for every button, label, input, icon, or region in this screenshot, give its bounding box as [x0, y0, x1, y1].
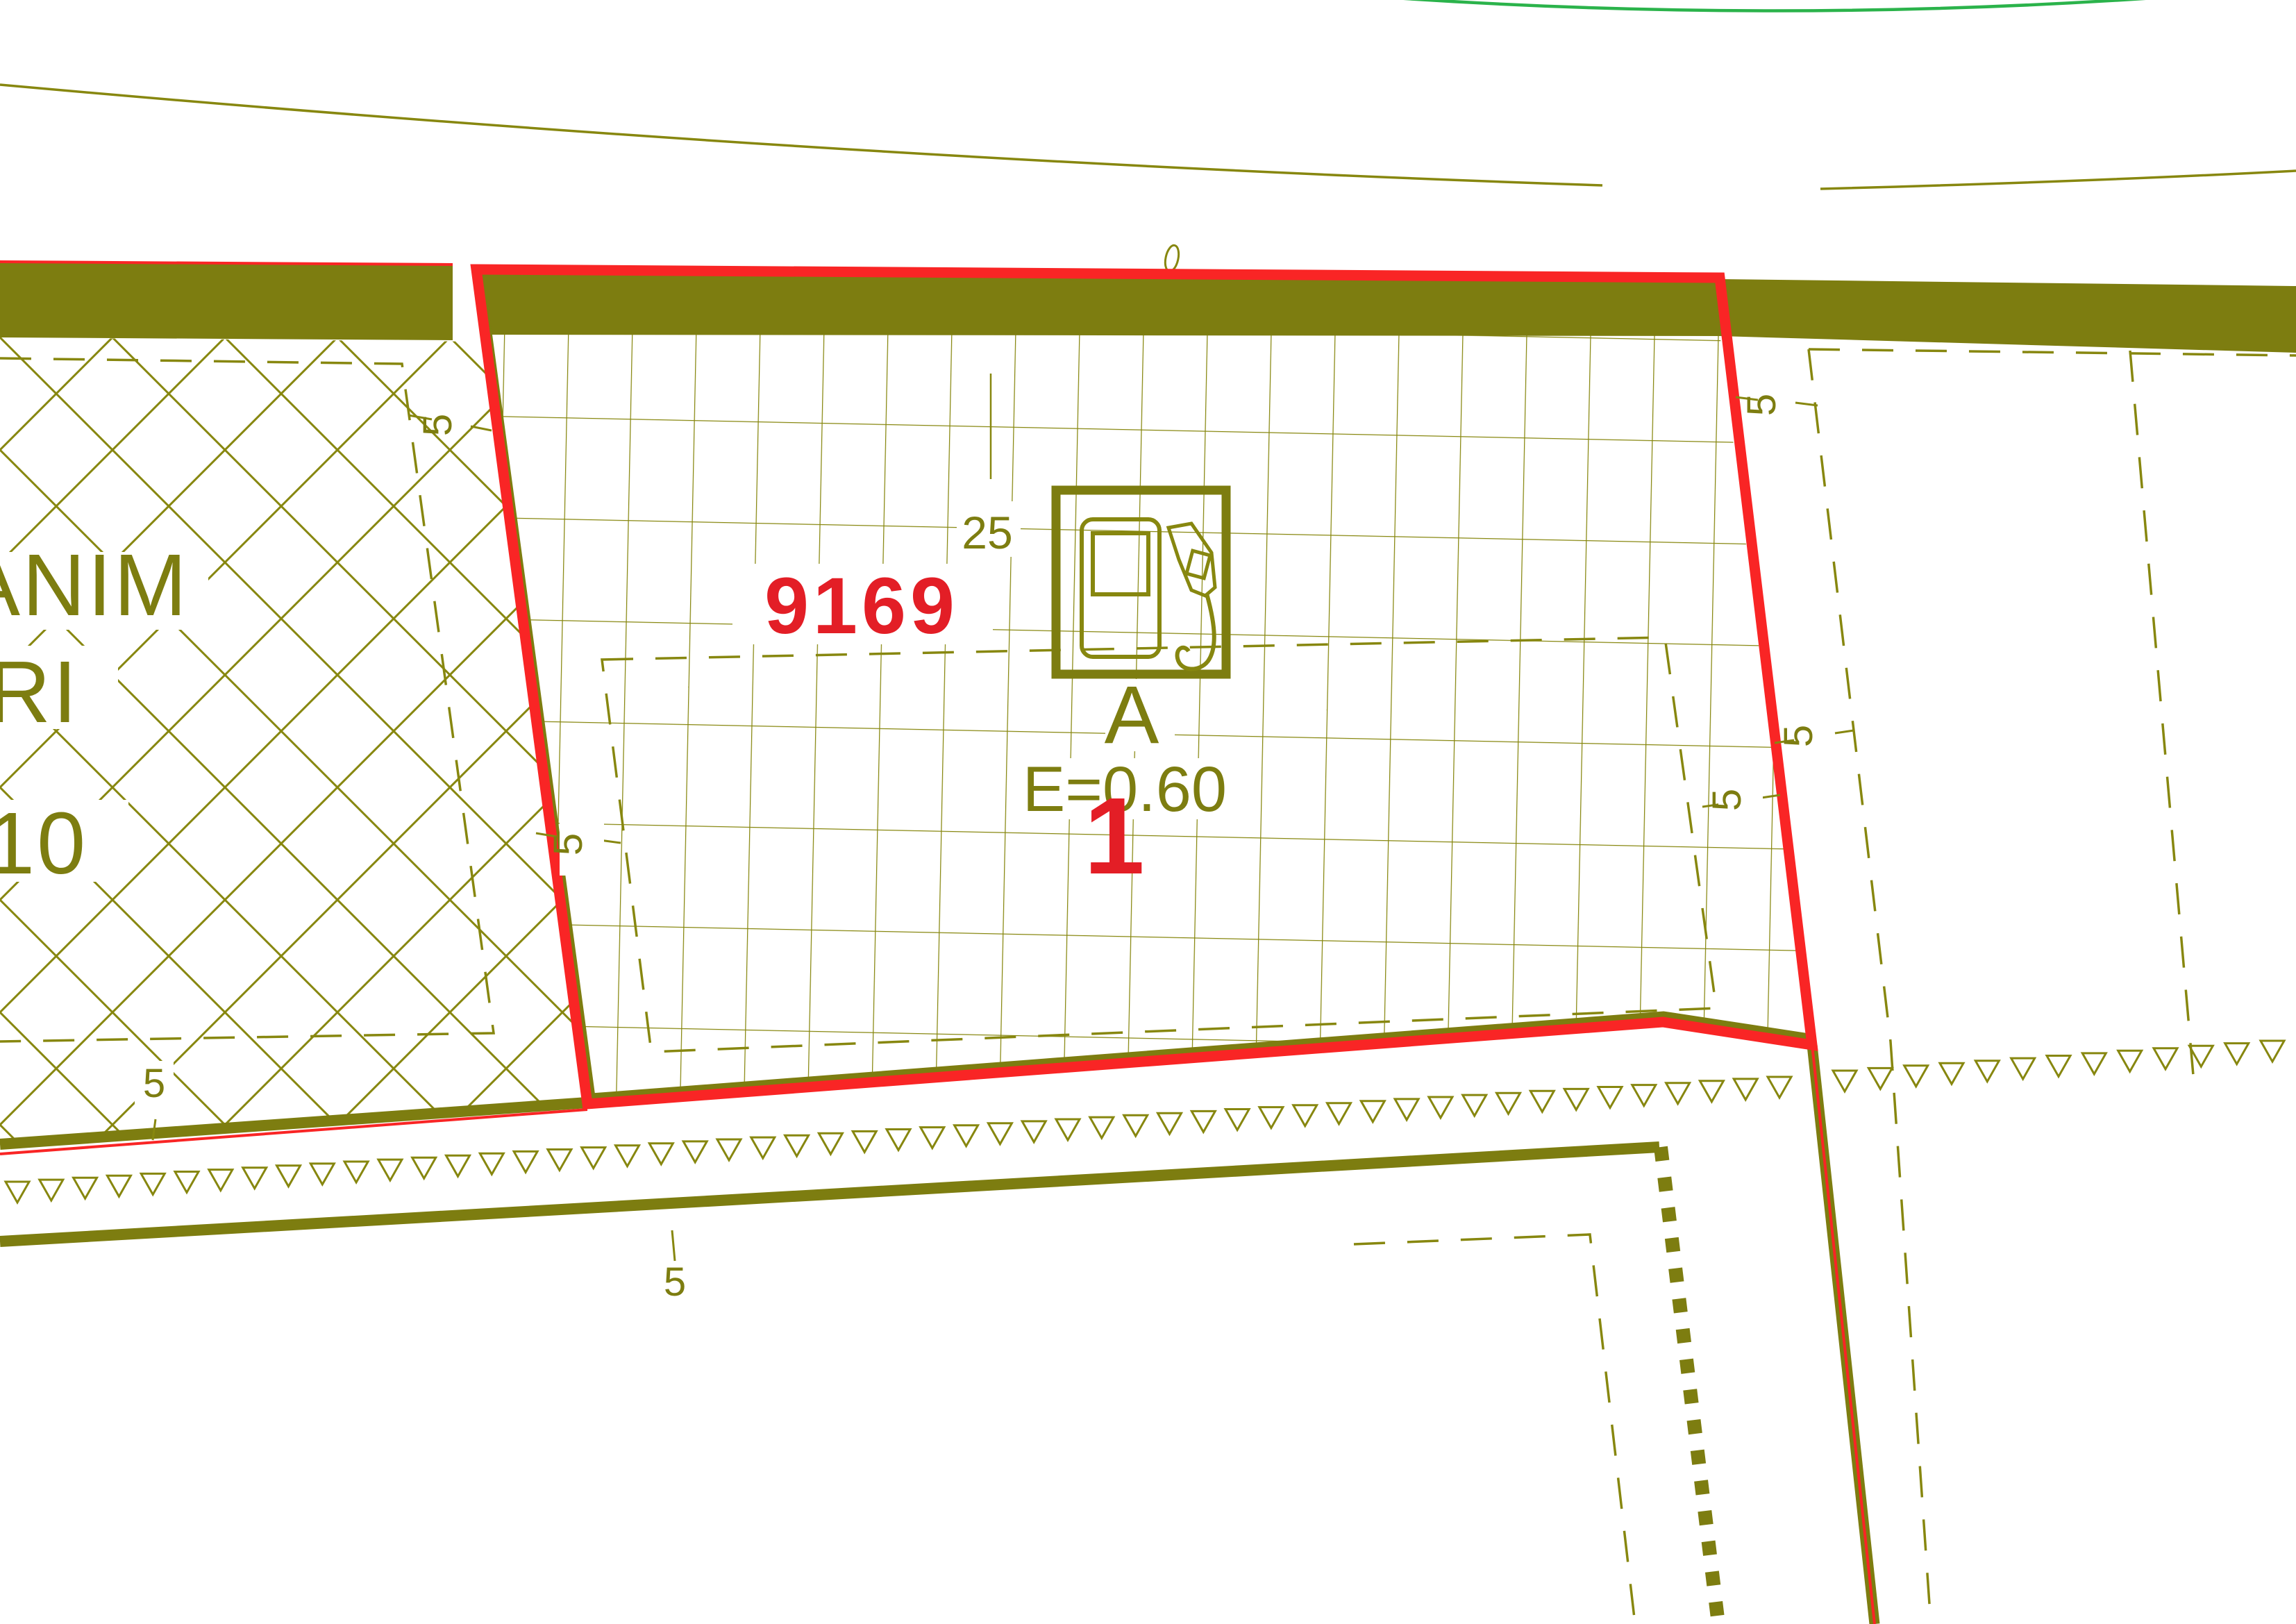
road-triangle-marker [310, 1164, 334, 1184]
road-triangle-marker [751, 1137, 775, 1158]
road-triangle-marker [582, 1148, 605, 1169]
small-node-glyph [1163, 244, 1181, 273]
road-band-left [0, 262, 453, 340]
road-triangle-marker [209, 1170, 233, 1191]
setback-dimension-label: 5 [664, 1259, 686, 1305]
road-triangle-marker [1666, 1083, 1690, 1104]
setback-dimension-label: 5 [1776, 725, 1821, 747]
setback-dimension-label: 5 [1739, 394, 1784, 416]
road-triangle-marker [1022, 1121, 1046, 1142]
road-triangle-marker [1530, 1091, 1554, 1112]
contour-curves [0, 0, 2296, 272]
left-zone-text-line1: ANIM [0, 536, 189, 634]
road-triangle-marker [412, 1157, 436, 1178]
road-triangle-marker [1395, 1099, 1418, 1120]
road-triangle-marker [548, 1150, 571, 1171]
road-triangle-marker [1632, 1085, 1656, 1106]
left-zone-text-line3: 10 [0, 794, 87, 892]
road-triangle-marker [1191, 1111, 1215, 1132]
road-triangle-marker [2047, 1056, 2070, 1077]
road-triangle-marker [74, 1178, 97, 1198]
zoning-plan-canvas: 9169 25 A E=0.60 1 ANIM RI 10 5555555 [0, 0, 2296, 1624]
green-boundary-curve [1396, 0, 2154, 11]
road-triangle-marker [887, 1130, 910, 1150]
road-triangle-marker [1361, 1101, 1384, 1122]
road-triangle-marker [2118, 1050, 2142, 1071]
road-triangle-marker [1734, 1079, 1757, 1100]
road-triangle-marker [1124, 1115, 1148, 1136]
road-triangle-marker [1768, 1077, 1791, 1098]
road-triangle-marker [921, 1128, 944, 1148]
road-triangle-marker [2082, 1053, 2106, 1074]
road-triangle-marker [480, 1153, 503, 1174]
road-triangle-marker [514, 1151, 537, 1172]
road-triangle-marker [1833, 1071, 1857, 1091]
road-triangle-marker [988, 1123, 1012, 1144]
road-triangle-marker [1225, 1110, 1249, 1130]
parcel-number-label: 9169 [764, 562, 959, 651]
road-triangle-marker [243, 1168, 267, 1189]
road-width-label: 25 [962, 507, 1012, 558]
road-triangle-marker [1293, 1105, 1317, 1126]
road-edge-diagonal-red-core [1812, 1045, 1875, 1624]
road-triangle-marker [2154, 1048, 2177, 1069]
road-triangle-marker [378, 1160, 402, 1180]
road-triangle-marker [717, 1139, 741, 1160]
road-triangle-marker [683, 1141, 707, 1162]
road-triangle-marker [1904, 1066, 1928, 1087]
setback-dimension-label: 5 [546, 833, 591, 855]
road-triangle-marker [1429, 1097, 1452, 1118]
road-triangle-marker [853, 1131, 876, 1152]
road-triangle-marker [1497, 1093, 1520, 1114]
road-triangle-marker [6, 1182, 29, 1203]
road-triangle-marker [1090, 1117, 1114, 1138]
road-triangle-marker [819, 1133, 842, 1154]
left-zone-text-line2: RI [0, 643, 79, 741]
road-triangle-marker [344, 1162, 368, 1182]
terrain-curve-right [1820, 171, 2296, 189]
road-triangle-marker [2261, 1041, 2284, 1062]
lower-block-dashed [1354, 1234, 1635, 1624]
road-triangle-marker [1259, 1107, 1283, 1128]
far-right-parcel-dashed [2130, 351, 2194, 1083]
road-triangle-marker [2011, 1058, 2035, 1079]
road-triangle-marker [107, 1175, 131, 1196]
terrain-curve-left [0, 85, 1602, 185]
setback-dimension-label: 5 [143, 1061, 165, 1106]
road-triangle-marker [2225, 1044, 2249, 1064]
road-triangle-marker [1700, 1081, 1723, 1102]
road-edges [0, 1045, 1875, 1624]
road-triangle-marker [1940, 1063, 1963, 1084]
road-triangle-marker [1327, 1103, 1351, 1124]
setback-dimension-label: 5 [1704, 789, 1750, 811]
road-triangle-marker [1564, 1089, 1588, 1110]
road-triangle-marker [141, 1173, 165, 1194]
road-triangle-marker [277, 1166, 301, 1187]
road-band-right [1720, 279, 2296, 353]
road-triangle-marker [649, 1144, 673, 1164]
road-triangle-marker [40, 1180, 63, 1200]
road-triangle-marker [446, 1155, 470, 1176]
road-edge-second [0, 1147, 1659, 1241]
road-triangle-marker [785, 1135, 809, 1156]
dotted-boundary-line [1661, 1147, 1718, 1624]
road-triangle-marker [616, 1146, 639, 1166]
neighbor-parcel-dashed [1809, 349, 1931, 1624]
road-triangle-marker [1868, 1068, 1892, 1089]
road-triangle-marker [1158, 1113, 1182, 1134]
road-triangle-marker [1056, 1119, 1080, 1140]
road-triangle-marker [1463, 1095, 1486, 1116]
plan-index-label: 1 [1084, 776, 1144, 897]
road-triangle-marker [1975, 1061, 1999, 1082]
zone-letter-label: A [1105, 669, 1159, 761]
setback-dimension-label: 5 [415, 414, 460, 436]
road-triangle-marker [955, 1125, 978, 1146]
road-triangle-marker [175, 1172, 199, 1193]
road-triangle-marker [1598, 1087, 1622, 1108]
